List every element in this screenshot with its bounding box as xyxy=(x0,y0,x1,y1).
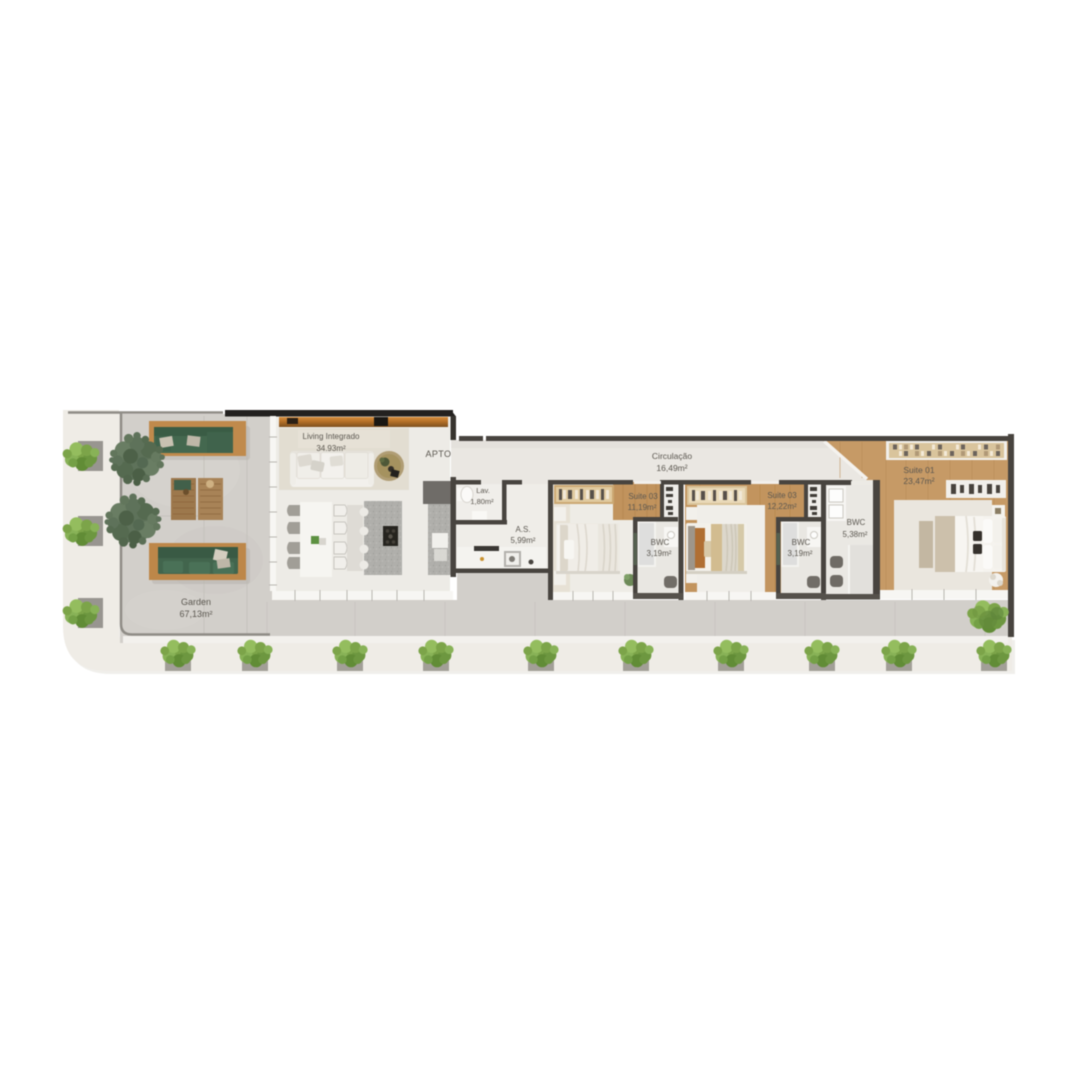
svg-text:12,22m²: 12,22m² xyxy=(767,502,797,511)
svg-text:BWC: BWC xyxy=(792,538,811,547)
svg-text:Suite 03: Suite 03 xyxy=(767,491,797,500)
svg-text:A.S.: A.S. xyxy=(515,525,530,534)
svg-text:3,19m²: 3,19m² xyxy=(647,549,672,558)
svg-text:BWC: BWC xyxy=(651,538,670,547)
svg-text:Suite 01: Suite 01 xyxy=(903,465,934,475)
svg-text:1,80m²: 1,80m² xyxy=(470,497,494,506)
svg-text:Suite 03: Suite 03 xyxy=(628,492,658,501)
svg-text:16,49m²: 16,49m² xyxy=(656,463,687,473)
svg-text:5,99m²: 5,99m² xyxy=(511,536,536,545)
svg-text:11,19m²: 11,19m² xyxy=(628,503,657,512)
svg-text:Living Integrado: Living Integrado xyxy=(303,432,360,441)
svg-text:Lav.: Lav. xyxy=(476,486,490,495)
svg-text:Circulação: Circulação xyxy=(652,451,692,461)
svg-text:67,13m²: 67,13m² xyxy=(179,609,212,619)
svg-text:BWC: BWC xyxy=(847,518,866,527)
svg-text:Garden: Garden xyxy=(181,597,211,607)
svg-text:23,47m²: 23,47m² xyxy=(903,476,934,486)
svg-text:3,19m²: 3,19m² xyxy=(788,549,813,558)
svg-text:5,38m²: 5,38m² xyxy=(843,530,868,539)
